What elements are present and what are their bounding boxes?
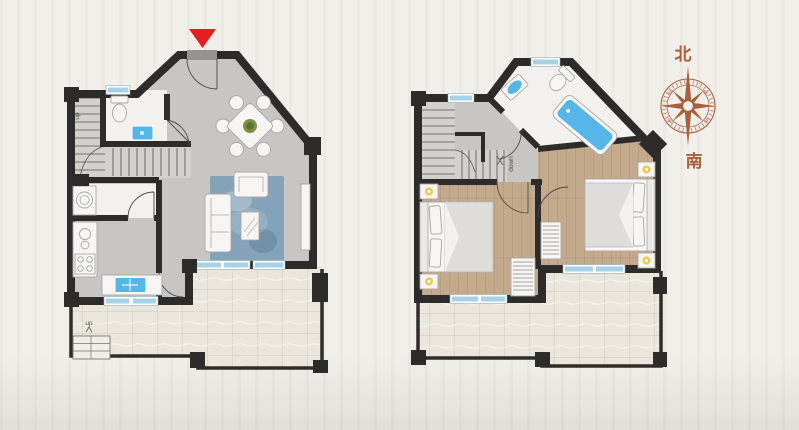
kitchen-sink-counter (102, 275, 162, 295)
window (448, 94, 474, 103)
stair-run-floor (105, 144, 191, 178)
window (104, 297, 158, 306)
ordinal-nw: NW (666, 88, 674, 96)
window (531, 58, 560, 67)
entry-opening (187, 50, 217, 60)
coffee-table (241, 212, 259, 240)
upper-floor-plan: down (405, 50, 667, 372)
wardrobe (541, 222, 561, 259)
window (450, 295, 507, 304)
south-label: 南 (686, 151, 703, 172)
compass-dial: NW NE SE SW (657, 66, 719, 146)
stair-floor (71, 90, 105, 178)
ground-floor-plan: up (58, 26, 330, 374)
window (253, 261, 285, 270)
exterior-steps-up-label: up (85, 320, 93, 327)
ordinal-ne: NE (702, 89, 710, 97)
toilet (111, 96, 128, 122)
window (106, 86, 130, 95)
stairs-up-label: up (74, 112, 81, 120)
kitchen-counter (73, 222, 97, 277)
sink-drain (140, 131, 144, 135)
armchair (234, 172, 268, 197)
tv-console (301, 184, 310, 250)
window (563, 265, 625, 274)
floor-plan-scene: up (0, 0, 799, 430)
stairs-down-label: down (508, 156, 515, 172)
sofa (205, 194, 231, 252)
entrance-arrow-icon (189, 29, 216, 48)
north-label: 北 (675, 45, 692, 65)
washing-machine (73, 186, 96, 215)
compass-rose: 北 南 NW NE SE SW (650, 34, 728, 174)
wardrobe (511, 258, 535, 296)
window (194, 261, 250, 270)
